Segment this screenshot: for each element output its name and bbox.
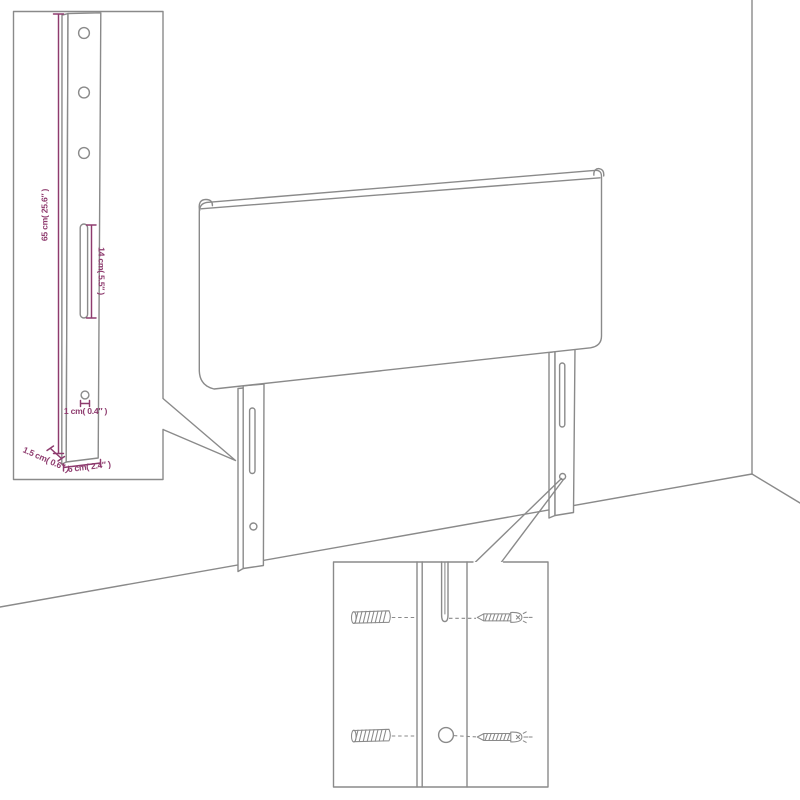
hole-diameter-label: 1 cm( 0.4″ ) — [64, 406, 108, 416]
inset-bracket-hole-1 — [79, 28, 90, 39]
inset-bracket-slot — [80, 224, 87, 318]
mounting-inset-frame — [334, 562, 549, 787]
diagram-canvas: 65 cm( 25.6″ ) 14 cm( 5.5″ ) 1 cm( 0.4″ … — [0, 0, 800, 800]
headboard-product-diagram: 65 cm( 25.6″ ) 14 cm( 5.5″ ) 1 cm( 0.4″ … — [0, 0, 800, 800]
inset-bracket-hole-2 — [79, 87, 90, 98]
bracket-height-label: 65 cm( 25.6″ ) — [40, 189, 50, 242]
left-leg — [238, 384, 264, 572]
mounting-inset — [334, 562, 549, 787]
left-leg-hole — [250, 523, 257, 530]
slot-length-label: 14 cm( 5.5″ ) — [97, 247, 107, 295]
right-leg-slot — [560, 363, 565, 427]
left-leg-side-face — [238, 388, 243, 572]
inset-bracket-small-hole — [81, 391, 89, 399]
inset-bracket-hole-3 — [79, 148, 90, 159]
left-leg-slot — [250, 408, 255, 474]
